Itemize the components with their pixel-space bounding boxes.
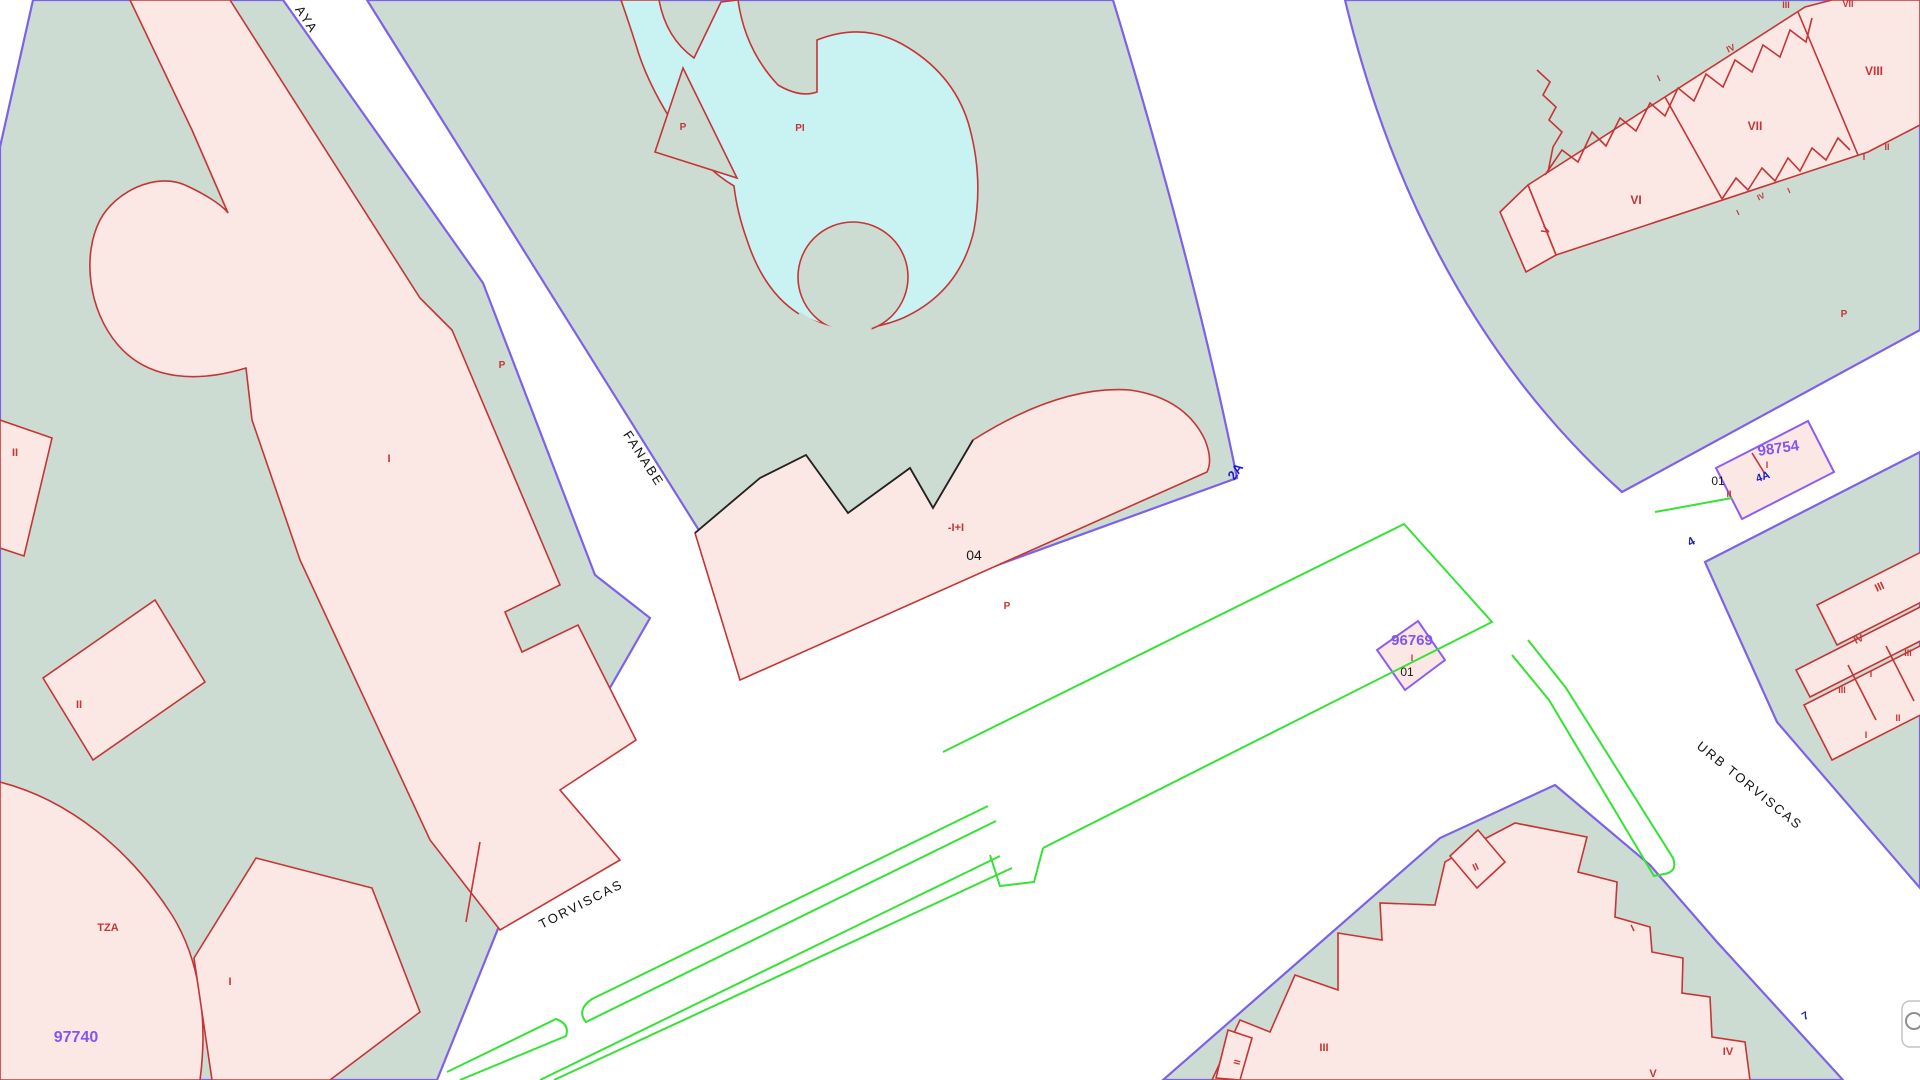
label-street-urb-torviscas: URB TORVISCAS xyxy=(1694,738,1806,832)
label-bld-floors: -I+I xyxy=(948,522,964,534)
label-wdg-iii-2: III xyxy=(1838,685,1846,695)
label-pool-pi: PI xyxy=(795,123,805,134)
pool-cove xyxy=(798,222,908,332)
parking-connector-u xyxy=(990,848,1043,886)
label-bld-vii-edge: VII xyxy=(1842,0,1853,9)
label-pool-p: P xyxy=(680,122,687,133)
label-bld-p-2: P xyxy=(499,360,506,371)
map-control-button[interactable] xyxy=(1902,1001,1920,1047)
curb-segment xyxy=(1655,498,1732,512)
label-bld-i-bl: I xyxy=(228,976,231,988)
label-portal-01-98754: 01 xyxy=(1711,474,1725,488)
label-bld-ii-far-left: II xyxy=(12,447,18,459)
cadastral-map: AYAFANABETORVISCASURB TORVISCAS977409676… xyxy=(0,0,1920,1080)
label-wdg-iii-3: III xyxy=(1904,648,1912,658)
label-bld-vi: VI xyxy=(1630,193,1641,207)
label-wdg-i-2: I xyxy=(1865,730,1868,740)
label-bld-viii: VIII xyxy=(1865,64,1883,78)
label-isl-i: I xyxy=(1766,460,1769,470)
label-bld-tza: TZA xyxy=(97,922,118,934)
label-bld-vii: VII xyxy=(1748,119,1763,133)
label-wdg-ii: II xyxy=(1895,713,1900,723)
label-br-iv: IV xyxy=(1723,1046,1734,1058)
label-br-iii: III xyxy=(1319,1042,1328,1054)
label-bld-ii-mid-left: II xyxy=(76,699,82,711)
label-parcel-97740: 97740 xyxy=(54,1029,99,1046)
label-num-7: 7 xyxy=(1800,1010,1811,1023)
label-wdg-i-1: I xyxy=(1870,669,1873,679)
median-strip-3 xyxy=(447,1019,567,1080)
label-isl2-i: I xyxy=(1411,653,1414,663)
label-br-v: V xyxy=(1649,1068,1657,1080)
label-portal-01-96769: 01 xyxy=(1400,665,1414,679)
label-isl-ii: II xyxy=(1726,489,1731,499)
label-bld-p-3: P xyxy=(1841,309,1848,320)
label-bld-i-r: I xyxy=(1863,152,1866,162)
label-bld-iii-edge: III xyxy=(1782,0,1790,10)
map-viewport[interactable]: AYAFANABETORVISCASURB TORVISCAS977409676… xyxy=(0,0,1920,1080)
label-num-4: 4 xyxy=(1685,534,1698,550)
label-parcel-96769: 96769 xyxy=(1391,632,1433,649)
label-portal-04: 04 xyxy=(966,547,982,563)
label-bld-i-left: I xyxy=(387,453,390,465)
median-strip-1 xyxy=(582,806,996,1022)
label-bld-p-1: P xyxy=(1004,601,1011,612)
label-bld-ii-r: II xyxy=(1884,142,1889,152)
